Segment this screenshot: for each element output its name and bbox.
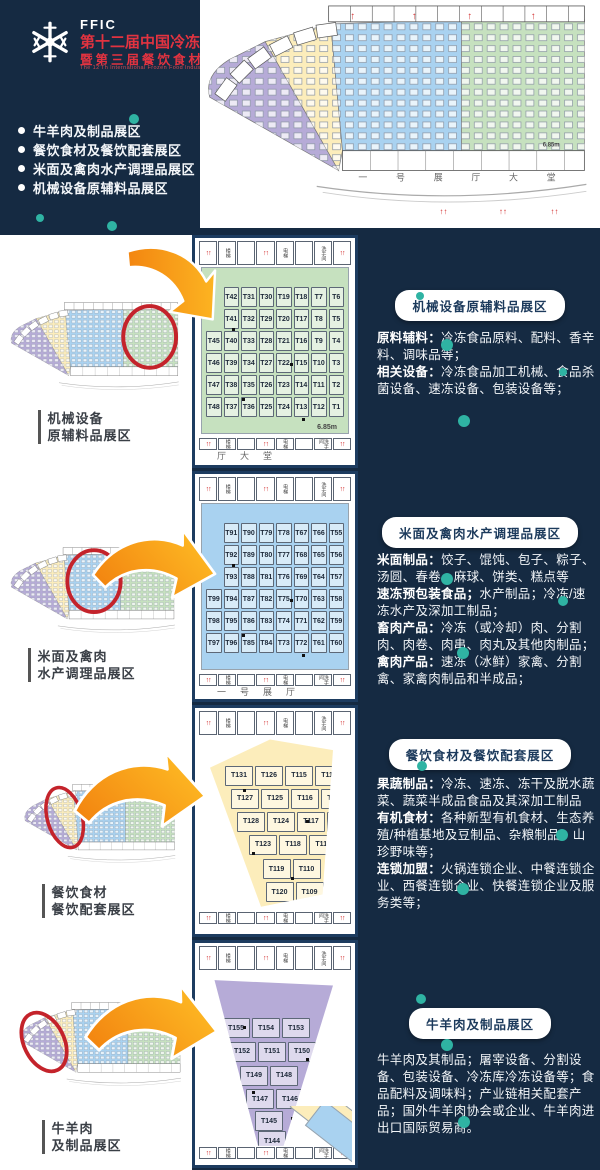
bullet-dot-icon (18, 146, 25, 153)
booth-cell: T81 (259, 567, 275, 587)
pillar-dot (243, 789, 246, 792)
room-box: 电梯 (276, 711, 294, 735)
room-label: 电梯 (282, 439, 287, 449)
booth-cell: T9 (311, 331, 327, 351)
entrance-arrow-icon: ↑↑ (263, 486, 268, 493)
booth-cell: T71 (294, 611, 310, 631)
booth-cell: T5 (329, 309, 345, 329)
room-box: 电梯 (276, 912, 294, 924)
room-box: 楼梯 (218, 711, 236, 735)
room-label: 电梯 (282, 953, 287, 963)
booth-cell: T68 (294, 545, 310, 565)
teal-dot (441, 339, 453, 351)
room-box (237, 946, 255, 970)
category-label: 原料辅料： (377, 331, 441, 345)
entrance-arrow-icon: ↑↑ (206, 720, 211, 727)
room-box: ↑↑ (256, 912, 274, 924)
booth-row: T123T118T111 (249, 835, 337, 855)
room-box (237, 477, 255, 501)
room-label: 洗手间 (320, 482, 325, 497)
pillar-dot (232, 564, 235, 567)
booth-cell: T21 (276, 331, 292, 351)
room-box: ↑↑ (333, 477, 351, 501)
room-box: ↑↑ (333, 438, 351, 450)
teal-dot (458, 1116, 470, 1128)
entrance-arrow-icon: ↑↑ (339, 720, 344, 727)
room-box: 洗手间 (314, 438, 332, 450)
room-label: 楼梯 (225, 248, 230, 258)
label-line: 及制品展区 (52, 1137, 122, 1154)
booth-cell: T41 (224, 309, 240, 329)
small-booth-cluster (234, 748, 316, 761)
booth-cell: T63 (311, 589, 327, 609)
booth-zone: T42T31T30T19T18T7T6T41T32T29T20T17T8T5T4… (201, 267, 349, 434)
entrance-arrow-icon: ↑↑ (263, 441, 268, 448)
corridor-strip: ↑↑楼梯↑↑电梯洗手间↑↑ (199, 946, 351, 970)
corridor-strip: ↑↑楼梯↑↑电梯洗手间↑↑ (199, 711, 351, 735)
booth-cell: T88 (241, 567, 257, 587)
teal-dot (457, 883, 469, 895)
booth-cell: T147 (246, 1089, 274, 1109)
svg-text:↑↑: ↑↑ (499, 207, 507, 216)
room-box: 洗手间 (314, 912, 332, 924)
room-box: 洗手间 (314, 674, 332, 686)
label-bar (28, 648, 31, 682)
zone-bullet-item: 餐饮食材及餐饮配套展区 (18, 140, 195, 159)
booth-cell: T60 (329, 633, 345, 653)
zone-bullet-item: 机械设备原辅料品展区 (18, 178, 195, 197)
detail-floorplan: ↑↑楼梯↑↑电梯洗手间↑↑T155T154T153T152T151T150T14… (192, 940, 358, 1168)
svg-text:大: 大 (509, 171, 518, 182)
room-box: ↑↑ (256, 711, 274, 735)
booth-cell: T72 (294, 633, 310, 653)
svg-text:号: 号 (396, 172, 405, 182)
booth-cell: T37 (224, 397, 240, 417)
room-box: 洗手间 (314, 711, 332, 735)
svg-text:6.85m: 6.85m (543, 143, 560, 149)
booth-cell: T47 (206, 375, 222, 395)
room-box: ↑↑ (256, 477, 274, 501)
booth-cell: T28 (259, 331, 275, 351)
booth-cell: T10 (311, 353, 327, 373)
booth-cell: T14 (294, 375, 310, 395)
room-box: ↑↑ (199, 674, 217, 686)
booth-cell: T149 (240, 1066, 268, 1086)
room-box: ↑↑ (199, 438, 217, 450)
category-label: 米面制品： (377, 553, 441, 567)
booth-cell: T120 (266, 882, 294, 902)
booth-cell: T95 (224, 611, 240, 631)
room-label: 洗手间 (320, 716, 325, 731)
section-label: 餐饮食材餐饮配套展区 (42, 884, 136, 918)
teal-dot (559, 368, 567, 376)
room-box: 洗手间 (314, 946, 332, 970)
booth-cell: T12 (311, 397, 327, 417)
category-label: 连锁加盟： (377, 862, 441, 876)
room-label: 电梯 (282, 913, 287, 923)
booth-cell: T2 (329, 375, 345, 395)
booth-cell: T125 (261, 789, 289, 809)
booth-cell: T56 (329, 545, 345, 565)
room-box: ↑↑ (333, 711, 351, 735)
entrance-arrow-icon: ↑↑ (263, 677, 268, 684)
pillar-dot (290, 599, 293, 602)
room-box: ↑↑ (333, 241, 351, 265)
svg-text:展: 展 (434, 172, 443, 182)
entrance-arrow-icon: ↑↑ (206, 955, 211, 962)
booth-row: T127T125T116T113 (231, 789, 349, 809)
booth-row: T42T31T30T19T18T7T6 (206, 287, 344, 307)
booth-row: T152T151T150 (228, 1042, 316, 1062)
booth-row: T47T38T35T26T23T14T11T2 (206, 375, 344, 395)
label-bar (42, 884, 45, 918)
room-box: ↑↑ (199, 477, 217, 501)
label-line: 机械设备 (48, 410, 132, 427)
category-label: 禽肉产品： (377, 655, 441, 669)
room-label: 楼梯 (225, 913, 230, 923)
booth-cell: T124 (267, 812, 295, 832)
booth-cell: T69 (294, 567, 310, 587)
room-box (237, 711, 255, 735)
booth-cell: T26 (259, 375, 275, 395)
category-label: 有机食材： (377, 811, 441, 825)
room-label: 洗手间 (320, 951, 325, 966)
booth-cell: T77 (276, 545, 292, 565)
booth-row: T120T109 (266, 882, 324, 902)
booth-cell: T99 (206, 589, 222, 609)
teal-dot (558, 596, 568, 606)
room-box: ↑↑ (256, 946, 274, 970)
booth-cell: T94 (224, 589, 240, 609)
pillar-dot (252, 852, 255, 855)
zone-description: 原料辅料：冷冻食品原料、配料、香辛料、调味品等；相关设备：冷冻食品加工机械、食品… (377, 330, 596, 398)
booth-row: T145 (255, 1111, 283, 1131)
teal-dot (458, 415, 470, 427)
svg-text:厅: 厅 (471, 172, 480, 182)
entrance-arrow-icon: ↑↑ (263, 955, 268, 962)
room-label: 洗手间 (318, 439, 328, 449)
room-label: 楼梯 (225, 953, 230, 963)
svg-text:↑↑: ↑↑ (440, 207, 448, 216)
booth-cell: T13 (294, 397, 310, 417)
snowflake-logo-icon (28, 20, 72, 64)
room-box: ↑↑ (199, 711, 217, 735)
zone-description: 果蔬制品：冷冻、速冻、冻干及脱水蔬菜、蔬菜半成品食品及其深加工制品有机食材：各种… (377, 776, 596, 912)
booth-cell: T70 (294, 589, 310, 609)
room-label: 电梯 (282, 675, 287, 685)
section-label: 牛羊肉及制品展区 (42, 1120, 122, 1154)
booth-cell: T116 (291, 789, 319, 809)
entrance-arrow-icon: ↑↑ (206, 1150, 211, 1157)
booth-cell: T73 (276, 633, 292, 653)
booth-row: T46T39T34T27T22T15T10T3 (206, 353, 344, 373)
svg-text:↑: ↑ (412, 11, 417, 22)
room-label: 洗手间 (318, 913, 328, 923)
entrance-arrow-icon: ↑↑ (339, 677, 344, 684)
pillar-dot (306, 1058, 309, 1061)
bullet-dot-icon (18, 184, 25, 191)
room-box (295, 438, 313, 450)
label-lines: 牛羊肉及制品展区 (52, 1120, 122, 1154)
booth-cell: T17 (294, 309, 310, 329)
bullet-label: 餐饮食材及餐饮配套展区 (33, 140, 182, 159)
booth-cell: T32 (241, 309, 257, 329)
description-paragraph: 果蔬制品：冷冻、速冻、冻干及脱水蔬菜、蔬菜半成品食品及其深加工制品 (377, 776, 596, 810)
bullet-label: 机械设备原辅料品展区 (33, 178, 168, 197)
zone-description: 米面制品：饺子、馄饨、包子、粽子、汤圆、春卷、麻球、饼类、糕点等速冻预包装食品；… (377, 552, 596, 688)
booth-cell: T4 (329, 331, 345, 351)
infographic-page: FFIC 第十二届中国冷冻食品产业大会 暨第三届餐饮食材博览会 The 12'T… (0, 0, 600, 1170)
booth-cell: T126 (255, 766, 283, 786)
booth-cell: T30 (259, 287, 275, 307)
room-box: 电梯 (276, 477, 294, 501)
room-box (295, 946, 313, 970)
booth-cell: T152 (228, 1042, 256, 1062)
booth-cell: T38 (224, 375, 240, 395)
svg-text:一: 一 (358, 172, 367, 182)
room-box: ↑↑ (333, 674, 351, 686)
entrance-arrow-icon: ↑↑ (263, 250, 268, 257)
room-label: 电梯 (282, 484, 287, 494)
label-lines: 米面及禽肉水产调理品展区 (38, 648, 136, 682)
booth-cell: T117 (297, 812, 325, 832)
booth-cell: T150 (288, 1042, 316, 1062)
room-box: ↑↑ (256, 241, 274, 265)
label-lines: 餐饮食材餐饮配套展区 (52, 884, 136, 918)
booth-row: T97T96T85T84T73T72T61T60 (206, 633, 344, 653)
mini-floorplan (8, 545, 180, 644)
entrance-arrow-icon: ↑↑ (206, 250, 211, 257)
label-line: 米面及禽肉 (38, 648, 136, 665)
booth-cell: T16 (294, 331, 310, 351)
zone-badge-wrap: 米面及禽肉水产调理品展区 (360, 517, 600, 548)
teal-dot (107, 221, 117, 231)
teal-dot (441, 573, 453, 585)
pillar-dot (243, 1026, 246, 1029)
booth-cell: T61 (311, 633, 327, 653)
booth-cell: T35 (241, 375, 257, 395)
room-box: ↑↑ (333, 912, 351, 924)
booth-cell: T55 (329, 523, 345, 543)
booth-cell: T31 (241, 287, 257, 307)
entrance-arrow-icon: ↑↑ (339, 250, 344, 257)
zone-description: 牛羊肉及其制品；屠宰设备、分割设备、包装设备、冷冻库冷冻设备等；食品配料及调味料… (377, 1052, 596, 1137)
booth-cell: T74 (276, 611, 292, 631)
room-label: 电梯 (282, 718, 287, 728)
entrance-arrow-icon: ↑↑ (339, 486, 344, 493)
room-box: ↑↑ (199, 1147, 217, 1159)
booth-cell: T46 (206, 353, 222, 373)
teal-dot (36, 214, 44, 222)
pillar-dot (302, 654, 305, 657)
room-box (295, 241, 313, 265)
mini-floorplan (22, 782, 180, 873)
booth-cell: T127 (231, 789, 259, 809)
detail-floorplan: ↑↑楼梯↑↑电梯洗手间↑↑T91T90T79T78T67T66T55T92T89… (192, 471, 358, 702)
room-box: 洗手间 (314, 477, 332, 501)
room-box (295, 711, 313, 735)
booth-cell: T114 (315, 766, 343, 786)
booth-cell: T8 (311, 309, 327, 329)
booth-row: T45T40T33T28T21T16T9T4 (206, 331, 344, 351)
zone-badge: 米面及禽肉水产调理品展区 (382, 517, 578, 548)
entrance-arrow-icon: ↑↑ (263, 720, 268, 727)
booth-cell: T62 (311, 611, 327, 631)
zone-badge: 牛羊肉及制品展区 (409, 1008, 551, 1039)
booth-cell: T40 (224, 331, 240, 351)
room-box (237, 912, 255, 924)
adjacent-zones-corner (286, 1106, 352, 1162)
zone-bullet-item: 牛羊肉及制品展区 (18, 121, 195, 140)
booth-cell: T34 (241, 353, 257, 373)
room-box: ↑↑ (199, 946, 217, 970)
label-bar (38, 410, 41, 444)
booth-cell: T96 (224, 633, 240, 653)
room-box: ↑↑ (199, 241, 217, 265)
booth-cell: T119 (263, 859, 291, 879)
booth-row: T48T37T36T25T24T13T12T1 (206, 397, 344, 417)
booth-cell: T111 (309, 835, 337, 855)
booth-cell: T110 (293, 859, 321, 879)
booth-cell: T148 (270, 1066, 298, 1086)
teal-dot (416, 292, 424, 300)
bullet-label: 米面及禽肉水产调理品展区 (33, 159, 195, 178)
zone-bullet-item: 米面及禽肉水产调理品展区 (18, 159, 195, 178)
svg-text:↑: ↑ (350, 11, 355, 22)
label-line: 餐饮食材 (52, 884, 136, 901)
booth-cell: T58 (329, 589, 345, 609)
room-label: 楼梯 (225, 675, 230, 685)
label-line: 水产调理品展区 (38, 665, 136, 682)
booth-cell: T131 (225, 766, 253, 786)
booth-cell: T20 (276, 309, 292, 329)
corridor-strip: ↑↑楼梯↑↑电梯洗手间↑↑ (199, 477, 351, 501)
booth-row: T131T126T115T114 (225, 766, 343, 786)
booth-row: T149T148 (240, 1066, 298, 1086)
section-label: 米面及禽肉水产调理品展区 (28, 648, 136, 682)
room-box: 洗手间 (314, 241, 332, 265)
room-label: 楼梯 (225, 718, 230, 728)
zone-badge-wrap: 机械设备原辅料品展区 (360, 290, 600, 321)
label-lines: 机械设备原辅料品展区 (48, 410, 132, 444)
booth-cell: T25 (259, 397, 275, 417)
pillar-dot (242, 634, 245, 637)
booth-cell: T42 (224, 287, 240, 307)
detail-floorplan: ↑↑楼梯↑↑电梯洗手间↑↑T42T31T30T19T18T7T6T41T32T2… (192, 235, 358, 468)
booth-cell: T57 (329, 567, 345, 587)
description-paragraph: 禽肉产品：速冻（冰鲜）家禽、分割禽、家禽肉制品和半成品； (377, 654, 596, 688)
booth-cell: T86 (241, 611, 257, 631)
pillar-dot (232, 328, 235, 331)
booth-cell: T115 (285, 766, 313, 786)
booth-cell: T118 (279, 835, 307, 855)
room-box: 电梯 (276, 241, 294, 265)
booth-cell: T29 (259, 309, 275, 329)
booth-row: T41T32T29T20T17T8T5 (206, 309, 344, 329)
logo-text: FFIC (80, 17, 117, 32)
lobby-text: 厅大堂 (217, 449, 286, 462)
category-label: 相关设备： (377, 365, 441, 379)
zone-badge-wrap: 牛羊肉及制品展区 (360, 1008, 600, 1039)
bullet-dot-icon (18, 127, 25, 134)
room-label: 电梯 (282, 248, 287, 258)
room-box: 楼梯 (218, 1147, 236, 1159)
booth-cell: T1 (329, 397, 345, 417)
booth-cell: T59 (329, 611, 345, 631)
long-booth-row (206, 508, 344, 521)
entrance-arrow-icon: ↑↑ (339, 915, 344, 922)
label-line: 餐饮配套展区 (52, 901, 136, 918)
entrance-arrow-icon: ↑↑ (206, 915, 211, 922)
description-paragraph: 连锁加盟：火锅连锁企业、中餐连锁企业、西餐连锁企业、快餐连锁企业及服务类等； (377, 861, 596, 912)
bullet-dot-icon (18, 165, 25, 172)
teal-dot (129, 114, 139, 124)
overview-floorplan: 一号展厅大堂6.85m↑↑↑↑↑↑↑↑↑↑ (200, 0, 600, 228)
booth-cell: T151 (258, 1042, 286, 1062)
room-box: 楼梯 (218, 912, 236, 924)
room-box (237, 241, 255, 265)
description-paragraph: 米面制品：饺子、馄饨、包子、粽子、汤圆、春卷、麻球、饼类、糕点等 (377, 552, 596, 586)
lobby-text: 一号展厅 (217, 685, 309, 698)
booth-cell: T19 (276, 287, 292, 307)
booth-cell: T39 (224, 353, 240, 373)
room-box: 楼梯 (218, 477, 236, 501)
room-box (295, 477, 313, 501)
label-line: 牛羊肉 (52, 1120, 122, 1137)
booth-cell: T98 (206, 611, 222, 631)
room-box: ↑↑ (333, 946, 351, 970)
room-box: 楼梯 (218, 241, 236, 265)
booth-cell: T65 (311, 545, 327, 565)
pillar-dot (242, 398, 245, 401)
booth-cell: T79 (259, 523, 275, 543)
booth-cell: T7 (311, 287, 327, 307)
booth-cell: T45 (206, 331, 222, 351)
booth-cell: T33 (241, 331, 257, 351)
svg-text:↑: ↑ (531, 11, 536, 22)
booth-cell: T64 (311, 567, 327, 587)
small-booth-cluster (231, 984, 313, 997)
pillar-dot (291, 877, 294, 880)
booth-cell: T87 (241, 589, 257, 609)
booth-cell: T27 (259, 353, 275, 373)
booth-cell: T18 (294, 287, 310, 307)
label-bar (42, 1120, 45, 1154)
corridor-strip: ↑↑楼梯↑↑电梯洗手间↑↑ (199, 241, 351, 265)
svg-text:↑: ↑ (467, 11, 472, 22)
zone-badge-wrap: 餐饮食材及餐饮配套展区 (360, 739, 600, 770)
room-label: 洗手间 (320, 246, 325, 261)
booth-row: T98T95T86T83T74T71T62T59 (206, 611, 344, 631)
entrance-arrow-icon: ↑↑ (206, 441, 211, 448)
scale-label: 6.85m (317, 424, 337, 431)
booth-cell: T97 (206, 633, 222, 653)
category-text: 牛羊肉及其制品；屠宰设备、分割设备、包装设备、冷冻库冷冻设备等；食品配料及调味料… (377, 1053, 595, 1135)
room-label: 楼梯 (225, 1148, 230, 1158)
booth-cell: T6 (329, 287, 345, 307)
booth-cell: T11 (311, 375, 327, 395)
mini-floorplan (18, 1000, 186, 1097)
room-box: ↑↑ (256, 1147, 274, 1159)
booth-cell: T145 (255, 1111, 283, 1131)
room-box: ↑↑ (199, 912, 217, 924)
booth-cell: T80 (259, 545, 275, 565)
room-box: 楼梯 (218, 946, 236, 970)
booth-row: T99T94T87T82T75T70T63T58 (206, 589, 344, 609)
room-box (237, 1147, 255, 1159)
booth-cell: T76 (276, 567, 292, 587)
category-label: 果蔬制品： (377, 777, 441, 791)
